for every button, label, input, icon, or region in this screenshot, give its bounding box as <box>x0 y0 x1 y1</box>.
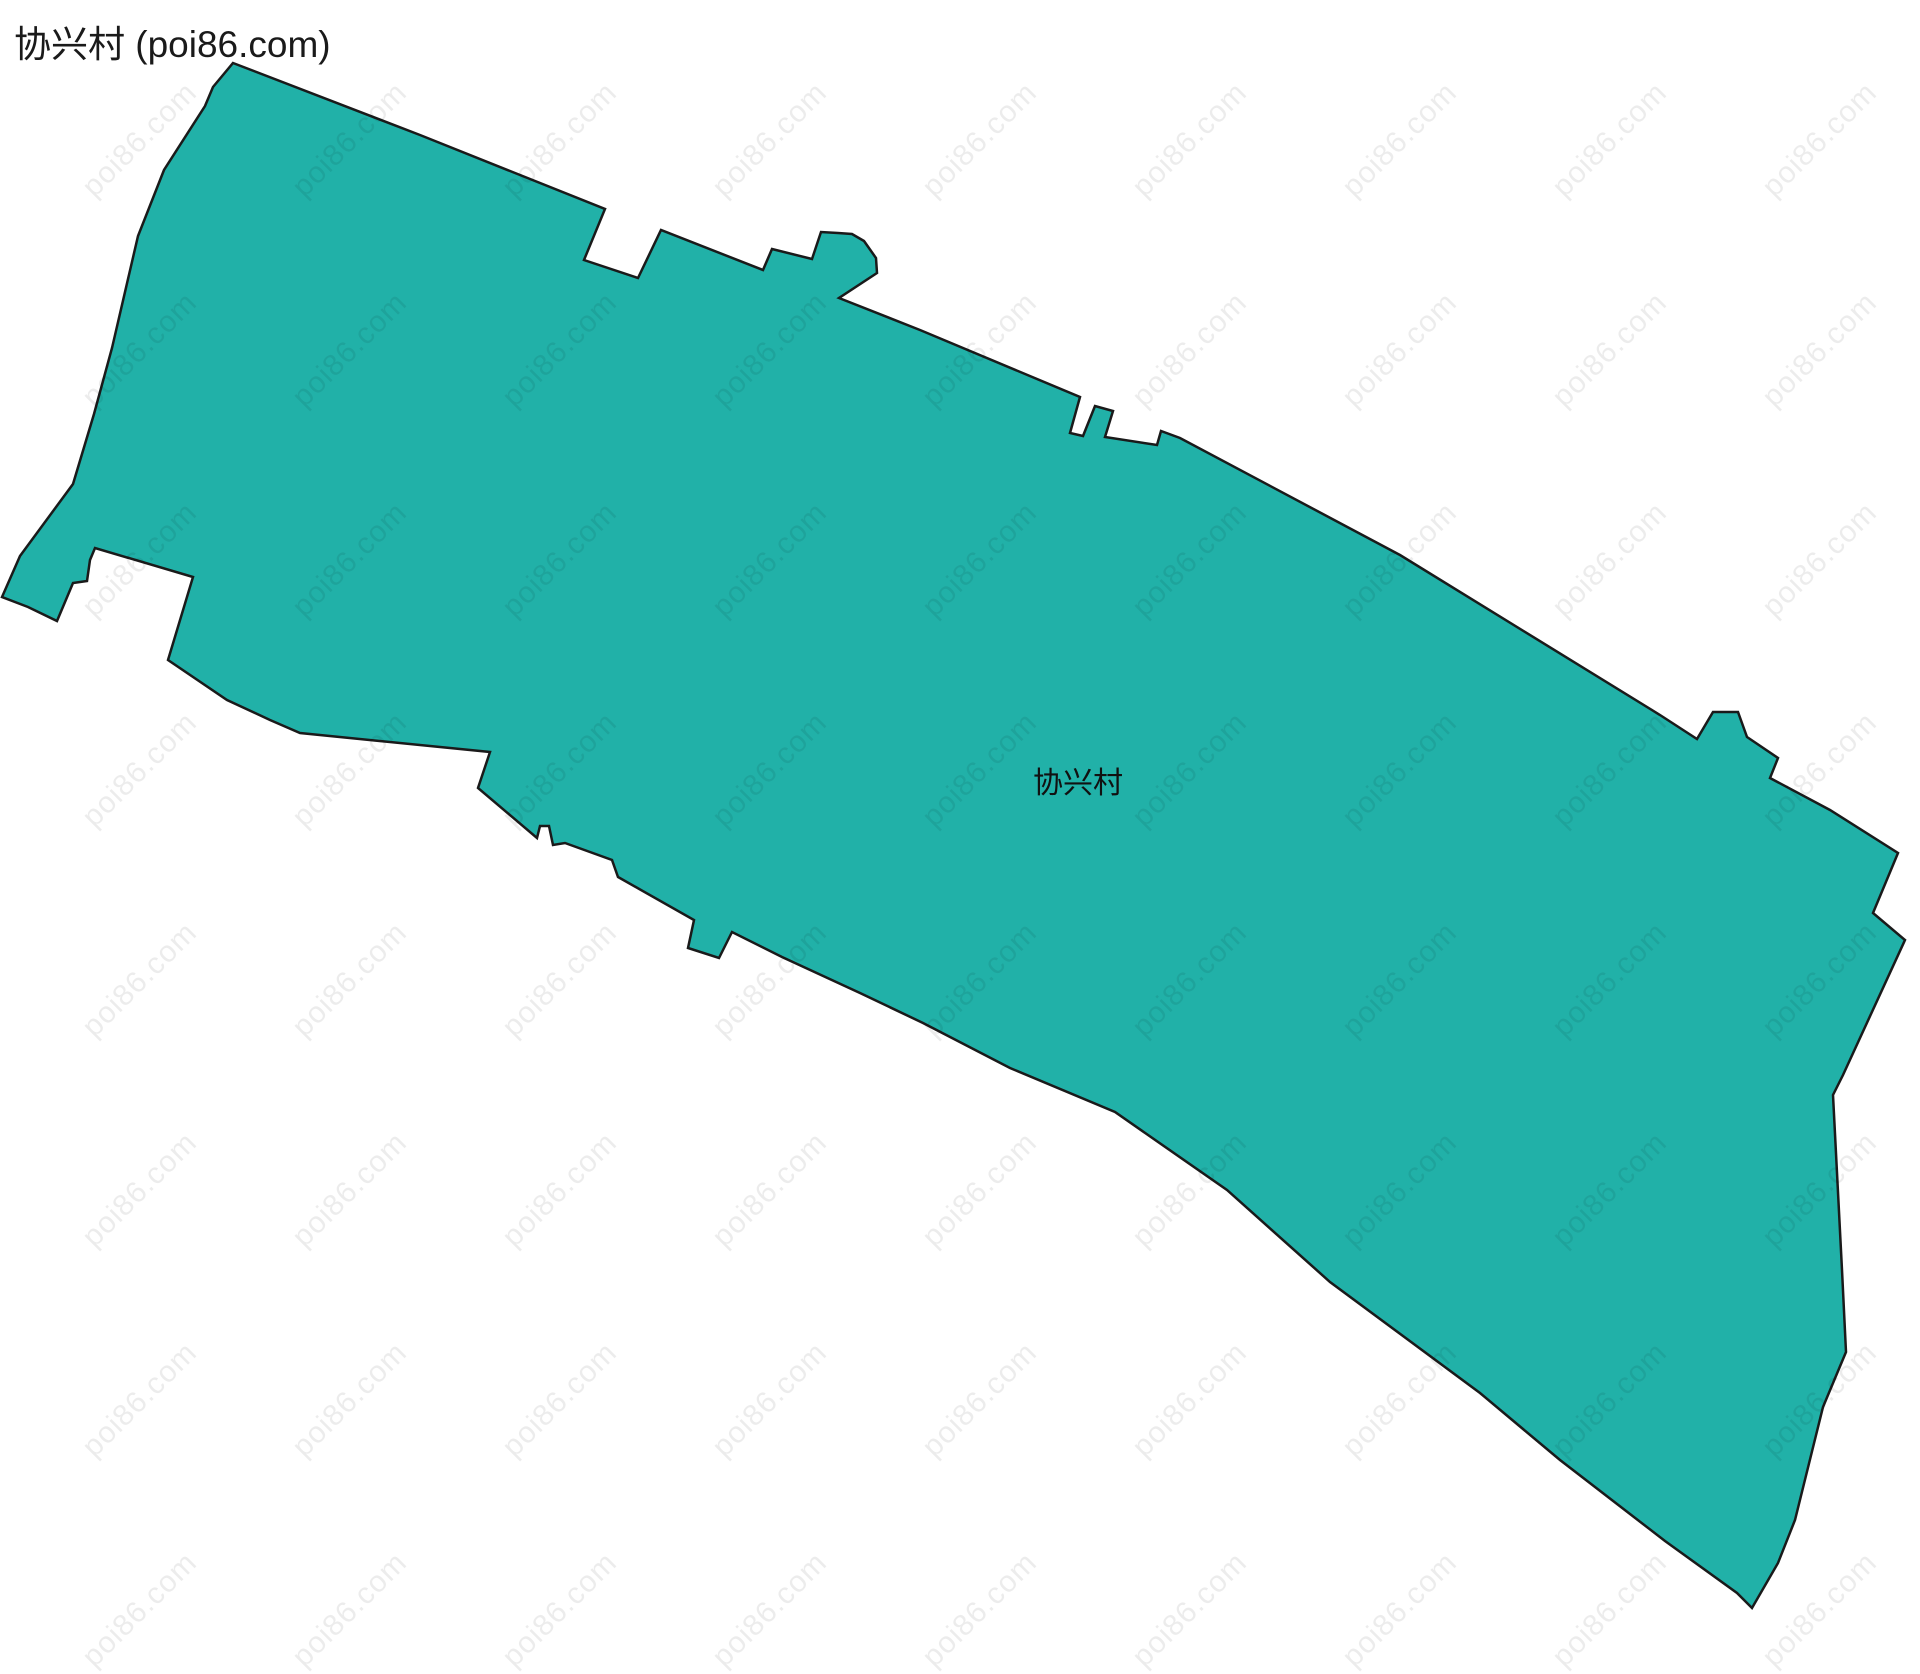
village-name-label: 协兴村 <box>1033 758 1123 802</box>
village-boundary-map <box>0 0 1920 1674</box>
map-canvas: poi86.compoi86.compoi86.compoi86.compoi8… <box>0 0 1920 1674</box>
village-boundary-polygon <box>2 63 1905 1608</box>
page-title: 协兴村 (poi86.com) <box>14 14 331 68</box>
